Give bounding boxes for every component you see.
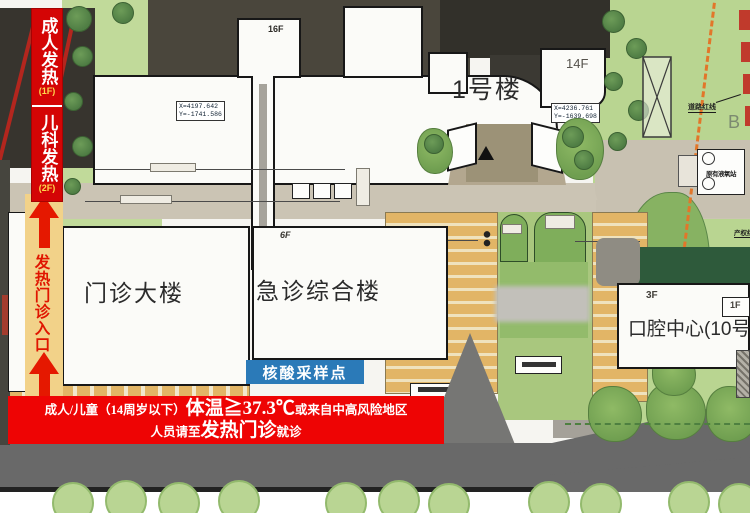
survey-mark-x: X=4236.761	[554, 105, 597, 113]
adult-fever-floor: (1F)	[39, 86, 56, 96]
blurred-area	[495, 286, 590, 322]
arrow-head	[29, 352, 59, 374]
fever-entrance-label: 发热门诊入口	[33, 254, 49, 356]
tree-icon	[112, 2, 134, 24]
notice-line2-prefix: 人员请至	[150, 425, 200, 439]
redline-block	[745, 106, 750, 126]
outpatient-name: 门诊大楼	[84, 274, 184, 308]
oxygen-tank-icon	[702, 177, 715, 190]
oxygen-connector	[678, 155, 698, 187]
redline-block	[741, 42, 750, 62]
building1-floors-label: 16F	[268, 24, 284, 34]
hospital-site-map: 16F 14F 1号楼 X=4197.642 Y=-1741.586 X=423…	[0, 0, 750, 513]
pediatric-fever-label: 儿科发热	[37, 114, 58, 182]
north-triangle-icon	[478, 146, 494, 160]
notice-line1-suffix: 或来自中高风险地区	[295, 403, 408, 417]
sampling-point-banner: 核酸采样点	[246, 360, 364, 384]
adult-fever-label: 成人发热	[37, 17, 58, 85]
redline-block	[743, 74, 750, 94]
tree-icon	[64, 178, 81, 195]
oxygen-station-label: 原有液氧站	[706, 168, 744, 178]
ramp-tag	[356, 168, 370, 206]
road-redline-label: 道路红线	[688, 102, 716, 113]
fever-banner: 成人发热 (1F) 儿科发热 (2F)	[31, 8, 63, 202]
dental-name: 口腔中心(10号	[628, 314, 750, 341]
notice-banner: 成人/儿童（14周岁以下）体温≧37.3℃或来自中高风险地区 人员请至发热门诊就…	[8, 396, 444, 444]
tree-icon	[608, 132, 627, 151]
up-arrow-icon	[29, 196, 59, 248]
survey-mark: X=4197.642 Y=-1741.586	[176, 101, 225, 121]
tree-icon	[64, 92, 83, 111]
notice-line2: 人员请至发热门诊就诊	[150, 420, 301, 442]
tree-icon	[72, 46, 93, 67]
survey-mark-x: X=4197.642	[179, 103, 222, 111]
dental-floors-label: 3F	[646, 290, 658, 301]
emergency-name: 急诊综合楼	[256, 272, 381, 306]
small-note-tag	[120, 195, 172, 204]
adult-fever-section: 成人发热 (1F)	[32, 9, 62, 107]
small-survey-tag	[545, 215, 575, 229]
tree-icon	[66, 6, 92, 32]
notice-line1-prefix: 成人/儿童（14周岁以下）	[45, 403, 186, 417]
arrow-shaft	[39, 218, 50, 248]
survey-mark-y: Y=-1741.586	[179, 111, 222, 119]
crosshatch-box	[642, 56, 672, 138]
hatched-annex	[736, 350, 750, 398]
notice-line2-emphasis: 发热门诊	[200, 420, 276, 441]
tree-icon	[424, 134, 444, 154]
pediatric-fever-floor: (2F)	[39, 183, 56, 193]
property-redline-label: 产权红线	[734, 227, 750, 238]
dental-annex-floors-label: 1F	[730, 300, 741, 310]
small-note-tag	[150, 163, 196, 172]
notice-line1-emphasis: 体温≧37.3℃	[186, 398, 295, 419]
tree-icon	[562, 126, 584, 148]
annotation-line	[95, 169, 345, 170]
tree-icon	[72, 136, 93, 157]
building1-upper-wing	[343, 6, 423, 78]
notice-line2-suffix: 就诊	[277, 425, 302, 439]
tree-icon	[602, 10, 625, 33]
oxygen-tank-icon	[702, 152, 715, 165]
oxygen-station-box: 原有液氧站	[697, 149, 745, 195]
bush-icon	[588, 386, 642, 442]
bush-icon	[556, 118, 604, 180]
tree-icon	[604, 72, 623, 91]
scooter-icon	[479, 229, 495, 247]
entrance-steps	[313, 183, 331, 199]
small-survey-tag	[502, 224, 522, 234]
entrance-steps	[334, 183, 352, 199]
emergency-floors-label: 6F	[280, 230, 291, 240]
green-arch-small	[500, 214, 528, 262]
building1-wing-floors-label: 14F	[566, 56, 588, 71]
gray-annex	[596, 238, 640, 286]
pediatric-fever-section: 儿科发热 (2F)	[32, 107, 62, 201]
redline-block	[739, 10, 750, 30]
entrance-steps	[292, 183, 310, 199]
speed-table-slot	[522, 362, 556, 367]
notice-line1: 成人/儿童（14周岁以下）体温≧37.3℃或来自中高风险地区	[45, 398, 408, 420]
hedge-dashed-line	[565, 423, 750, 425]
tree-icon	[574, 150, 594, 170]
dental-roof-green	[632, 247, 750, 285]
zone-b-label: B	[728, 112, 740, 133]
building1-name: 1号楼	[452, 70, 522, 106]
sampling-point-label: 核酸采样点	[262, 362, 347, 383]
